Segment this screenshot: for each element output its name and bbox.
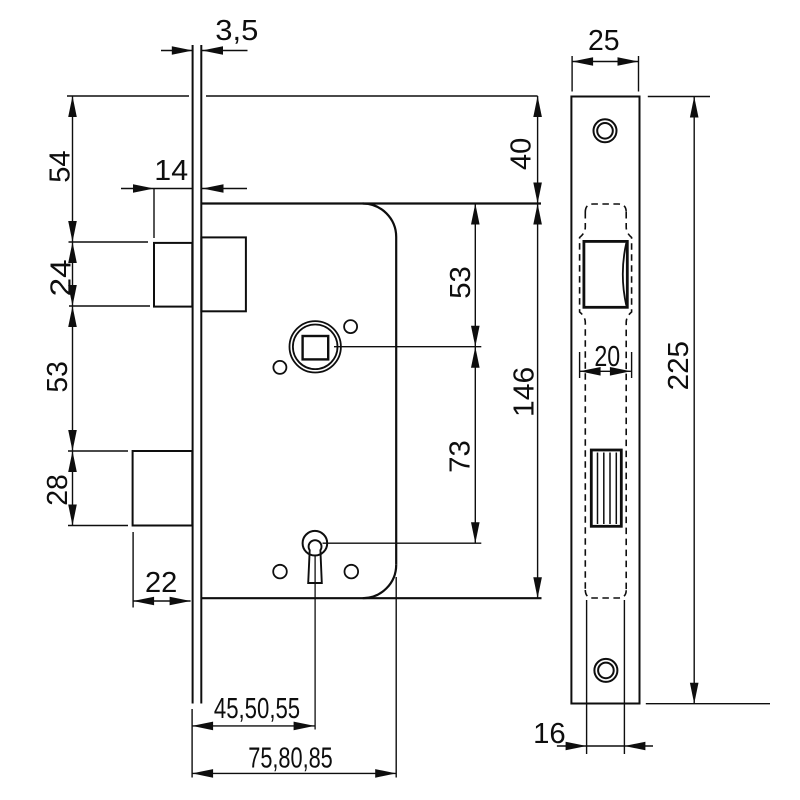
svg-text:22: 22 bbox=[145, 567, 177, 599]
svg-text:3,5: 3,5 bbox=[215, 15, 258, 47]
svg-text:53: 53 bbox=[42, 361, 74, 392]
svg-text:14: 14 bbox=[154, 155, 188, 187]
svg-text:75,80,85: 75,80,85 bbox=[248, 742, 333, 774]
svg-text:20: 20 bbox=[594, 341, 620, 373]
svg-text:24: 24 bbox=[45, 259, 77, 296]
svg-text:73: 73 bbox=[444, 440, 476, 473]
svg-text:45,50,55: 45,50,55 bbox=[214, 693, 300, 725]
svg-text:146: 146 bbox=[508, 367, 540, 417]
svg-text:16: 16 bbox=[533, 718, 566, 750]
svg-text:225: 225 bbox=[663, 341, 695, 390]
svg-text:25: 25 bbox=[588, 25, 620, 57]
svg-text:54: 54 bbox=[45, 150, 77, 182]
svg-text:53: 53 bbox=[445, 266, 477, 299]
svg-text:28: 28 bbox=[42, 474, 74, 506]
svg-text:40: 40 bbox=[506, 138, 538, 170]
